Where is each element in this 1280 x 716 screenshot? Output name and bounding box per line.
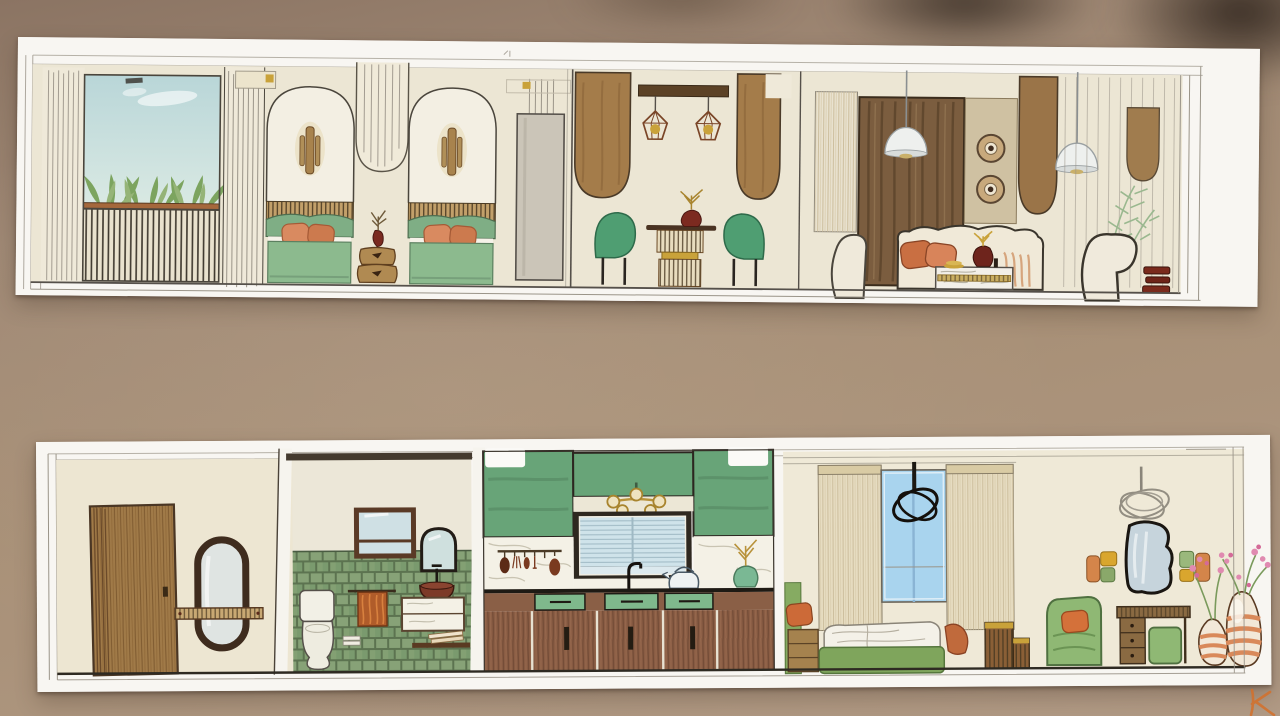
white-patch-right <box>728 447 768 466</box>
soap <box>343 636 360 640</box>
nightstand <box>357 210 397 282</box>
utensil-rail <box>498 551 562 576</box>
fern-decal <box>1102 185 1160 263</box>
upper-cabinet-left <box>483 451 573 538</box>
dining-elevation <box>574 72 792 287</box>
upper-cabinet-center <box>573 452 693 497</box>
textured-throw <box>1004 252 1030 286</box>
dining-table <box>646 225 717 287</box>
kettle <box>663 567 699 588</box>
soffit <box>573 496 693 512</box>
sofa <box>897 225 1043 290</box>
marble-backsplash-right <box>694 536 774 589</box>
green-drawer <box>605 593 658 609</box>
photo-glare <box>122 81 198 110</box>
towel-rail <box>348 591 396 626</box>
brown-arch-panel <box>1018 77 1057 214</box>
green-armchair <box>1047 597 1101 665</box>
gold-chip <box>266 74 274 82</box>
curtain-left <box>818 465 882 630</box>
abstract-art-left <box>1087 552 1117 582</box>
door-handle <box>163 587 168 597</box>
pendant-lamp-left <box>885 70 928 158</box>
green-vase <box>734 540 758 587</box>
entry-hall-elevation <box>90 504 263 675</box>
pencil-dimension-mark <box>504 51 510 57</box>
vanity-cabinet <box>402 598 464 631</box>
blurred-object-top-center <box>830 0 1100 50</box>
wall-gap <box>469 447 486 673</box>
table-surface <box>0 0 1280 716</box>
twin-bed-right <box>408 88 497 285</box>
pendant-cage-left <box>643 111 667 139</box>
vase <box>373 230 383 246</box>
curved-chair-outline-left <box>832 235 867 299</box>
slatted-shelf <box>175 608 263 620</box>
gold-chandelier <box>607 482 665 516</box>
striped-wall <box>1064 77 1175 288</box>
green-drawer <box>665 593 713 609</box>
marble-veins <box>489 542 771 582</box>
dining-chair-right <box>723 214 764 286</box>
abstract-art-right <box>1180 551 1210 581</box>
cabinet-handle <box>690 626 695 649</box>
fluted-wall-panel <box>41 67 85 282</box>
bedside-table <box>788 629 818 671</box>
white-patch-left <box>485 448 525 467</box>
arched-wood-panel-right <box>736 74 780 199</box>
drawer-band <box>484 592 774 612</box>
kitchen-elevation <box>483 447 774 672</box>
toilet <box>300 590 334 669</box>
bedroom-elevation <box>784 461 1029 673</box>
orange-mark <box>1244 688 1278 716</box>
arched-wood-panel-left <box>574 72 630 198</box>
table-vase <box>973 246 993 266</box>
cabinet-handle <box>628 627 633 650</box>
green-drawer <box>535 594 585 610</box>
coffee-table <box>936 231 1014 290</box>
wood-feature-wall <box>858 97 965 286</box>
twin-bed-left <box>266 86 355 283</box>
table-vase <box>680 189 702 226</box>
bathroom-elevation <box>286 452 473 672</box>
ceiling-beam <box>638 85 728 97</box>
flower-stems <box>1189 544 1271 620</box>
balcony-plants <box>80 173 229 213</box>
balcony-elevation <box>41 67 230 284</box>
floor-line <box>31 282 1181 293</box>
small-arch-niche <box>1127 108 1160 181</box>
curtain-panel <box>814 92 857 232</box>
lower-cabinets <box>484 610 774 672</box>
tan-panel-with-discs <box>964 98 1017 223</box>
curtain-right <box>946 464 1014 629</box>
floor-line <box>57 667 1245 674</box>
curved-chair-outline-right <box>1082 234 1137 301</box>
arched-vanity-mirror <box>422 529 456 571</box>
duvet <box>824 622 940 653</box>
dining-chair-left <box>595 213 636 285</box>
wall-disc-bottom <box>977 176 1004 203</box>
top-elevation-painting <box>16 37 1260 307</box>
pendant-cage-right <box>696 112 720 140</box>
oval-mirror <box>198 540 247 648</box>
kitchen-window <box>573 511 691 579</box>
wall-tag <box>236 71 276 88</box>
wood-door <box>90 504 178 675</box>
balcony-railing <box>83 209 220 282</box>
fluted-column <box>223 67 276 287</box>
blurred-object-top-right <box>1110 0 1280 85</box>
countertop <box>484 588 774 594</box>
bed-frame <box>819 647 944 674</box>
dark-smudge <box>125 78 142 84</box>
desk-chair <box>1149 627 1181 663</box>
green-tile-wall <box>293 550 473 672</box>
striped-vases <box>1199 592 1262 667</box>
dressing-desk <box>1117 606 1190 663</box>
wardrobe-panel <box>505 79 571 281</box>
pendant-lamp-right <box>1056 72 1099 174</box>
orange-pillow <box>786 602 813 627</box>
bottom-elevation-painting <box>36 435 1271 692</box>
bed <box>819 622 944 674</box>
elevation-board-bottom <box>36 435 1271 692</box>
vanity-living-elevation <box>1046 466 1271 667</box>
orbital-ring-pendant <box>888 462 942 527</box>
cream-notch <box>765 74 791 98</box>
framed-mirror <box>356 510 413 556</box>
basin-faucet <box>432 566 442 586</box>
kitchen-faucet <box>629 564 641 589</box>
blurred-shadow-top <box>560 0 800 30</box>
cabinet-handle <box>564 627 569 650</box>
wall-partition <box>273 449 293 675</box>
marble-backsplash-left <box>484 537 574 591</box>
upper-cabinet-right <box>693 450 773 536</box>
bedroom-window <box>881 470 947 602</box>
living-room-elevation <box>814 70 1175 301</box>
shelf-books <box>429 631 464 644</box>
sky <box>83 75 220 206</box>
vessel-sink <box>420 586 454 600</box>
twigs <box>371 210 386 230</box>
planter-box <box>83 203 219 210</box>
wall-shelf <box>412 643 470 648</box>
gold-flower <box>974 231 992 246</box>
ceiling-band <box>286 452 472 460</box>
slatted-bench <box>985 622 1029 668</box>
rust-throw <box>945 624 968 654</box>
sketched-pendant <box>1117 466 1172 523</box>
elevation-board-top <box>16 37 1260 307</box>
stacked-books <box>1143 267 1170 293</box>
wall-disc-top <box>977 135 1004 162</box>
arched-pier <box>356 62 409 171</box>
blob-mirror <box>1126 522 1172 594</box>
headboard-edge <box>785 583 802 674</box>
